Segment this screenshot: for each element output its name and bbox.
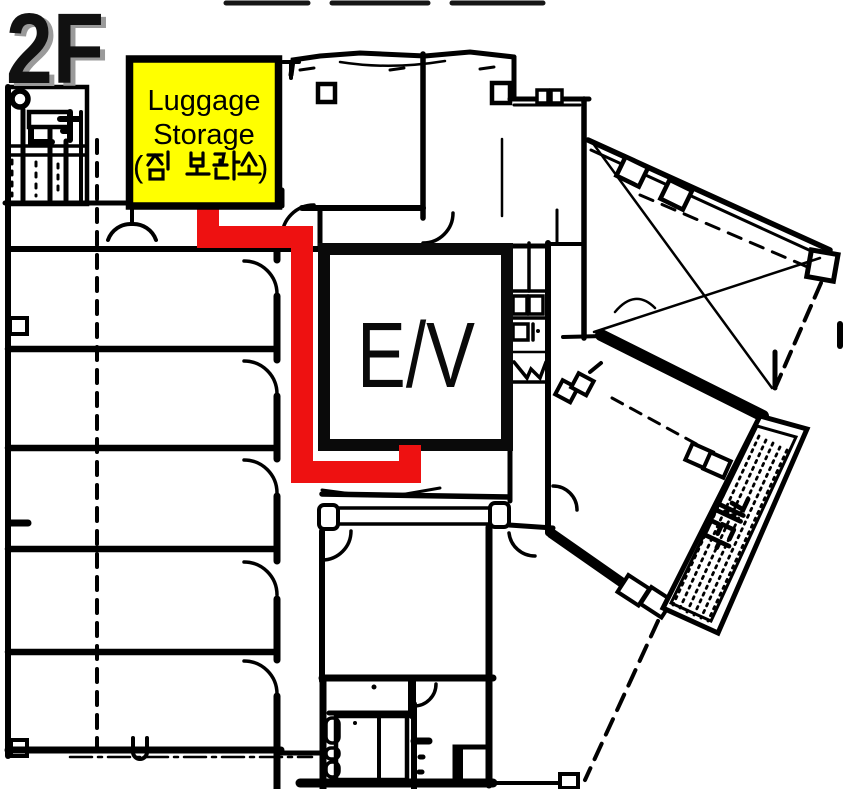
svg-text:2F: 2F <box>6 0 104 105</box>
svg-text:Storage: Storage <box>153 119 255 151</box>
svg-text:Luggage: Luggage <box>148 85 261 117</box>
svg-text:): ) <box>258 149 268 184</box>
svg-text:(: ( <box>133 149 144 184</box>
svg-text:E/V: E/V <box>357 303 475 407</box>
